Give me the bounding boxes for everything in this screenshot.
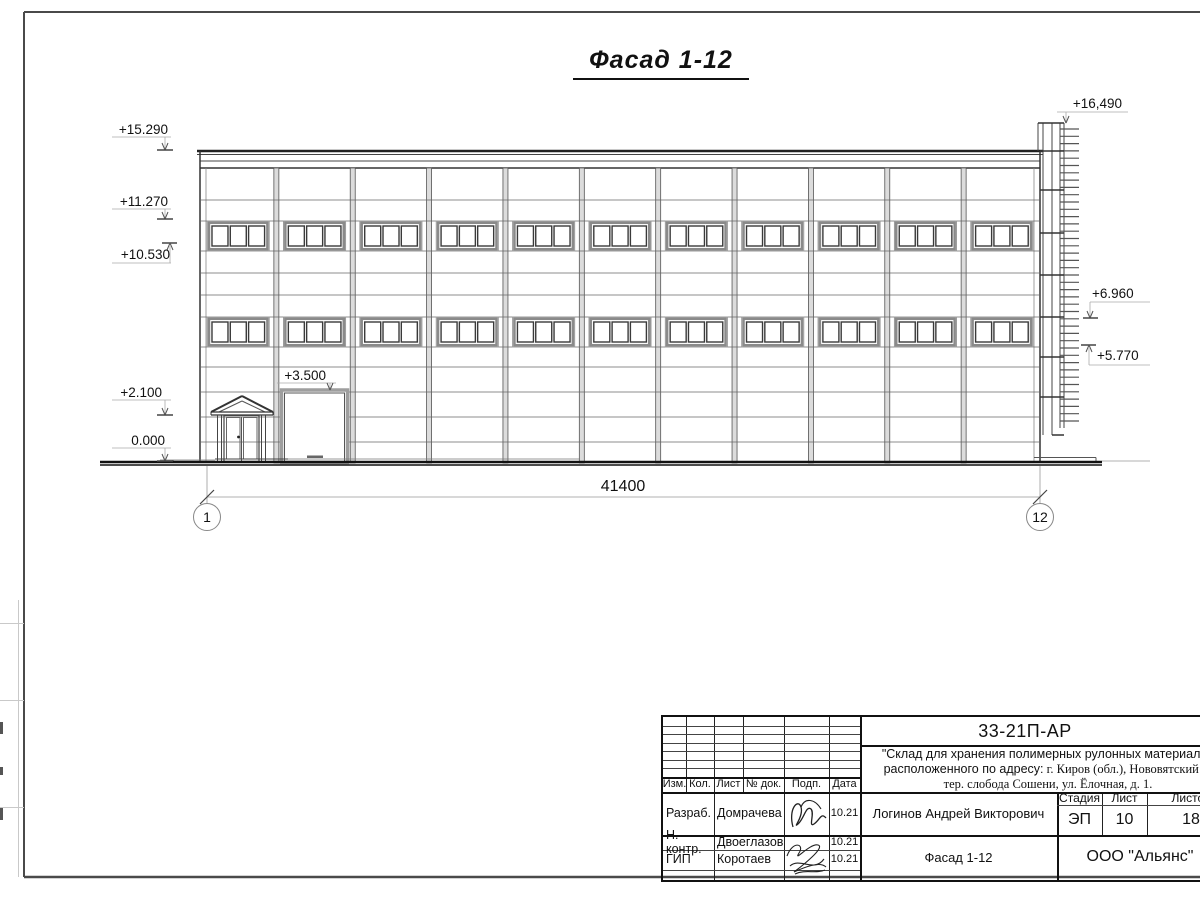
tb-company: ООО "Альянс" bbox=[1057, 835, 1200, 880]
project-line-3: тер. слобода Сошени, ул. Ёлочная, д. 1. bbox=[862, 777, 1200, 792]
elevation-label: +6.960 bbox=[1092, 286, 1134, 301]
tb-role: ГИП bbox=[663, 850, 717, 870]
tb-stage-header: Стадия bbox=[1057, 792, 1102, 805]
project-line-1: "Склад для хранения полимерных рулонных … bbox=[862, 747, 1200, 762]
dimension-text: 41400 bbox=[601, 478, 646, 495]
axis-bubble-label: 1 bbox=[203, 509, 211, 525]
project-line-2: расположенного по адресу: г. Киров (обл.… bbox=[862, 762, 1200, 777]
tb-list-header: Лист bbox=[1102, 792, 1147, 805]
elevation-label: 0.000 bbox=[131, 433, 165, 448]
elevation-label: +10.530 bbox=[121, 247, 170, 262]
tb-project-desc: "Склад для хранения полимерных рулонных … bbox=[862, 747, 1200, 792]
margin-mark bbox=[0, 722, 3, 734]
margin-line bbox=[18, 600, 19, 877]
elevation-label: +11.270 bbox=[120, 194, 168, 209]
tb-date: 10.21 bbox=[829, 792, 860, 835]
tb-date: 10.21 bbox=[829, 835, 860, 850]
signature bbox=[783, 836, 829, 878]
tb-list-value: 10 bbox=[1102, 805, 1147, 835]
title-block: Изм. Кол. Лист № док. Подп. Дата Разраб.… bbox=[661, 715, 1200, 882]
tb-header-data: Дата bbox=[829, 777, 860, 792]
axis-bubble-label: 12 bbox=[1032, 509, 1048, 525]
elevation-label: +16,490 bbox=[1073, 96, 1122, 111]
tb-header-izm: Изм. bbox=[663, 777, 686, 792]
margin-mark bbox=[0, 808, 3, 820]
tb-doc-number: 33-21П-АР bbox=[860, 717, 1190, 745]
margin-line bbox=[0, 700, 24, 701]
tb-date: 10.21 bbox=[829, 850, 860, 870]
tb-header-list: Лист bbox=[714, 777, 743, 792]
tb-listov-value: 18 bbox=[1147, 805, 1200, 835]
margin-line bbox=[0, 623, 24, 624]
elevation-label: +5.770 bbox=[1097, 348, 1139, 363]
tb-header-kol: Кол. bbox=[686, 777, 714, 792]
tb-header-podp: Подп. bbox=[784, 777, 829, 792]
elevation-label: +15.290 bbox=[119, 122, 168, 137]
tb-header-doc: № док. bbox=[743, 777, 784, 792]
tb-role-name: Двоеглазов bbox=[714, 835, 787, 850]
tb-drawing-title: Фасад 1-12 bbox=[860, 835, 1057, 880]
elevation-label: +2.100 bbox=[120, 385, 162, 400]
tb-stage-value: ЭП bbox=[1057, 805, 1102, 835]
margin-line bbox=[0, 807, 24, 808]
elevation-label: +3.500 bbox=[284, 368, 326, 383]
signature bbox=[785, 795, 829, 835]
tb-role-name: Домрачева bbox=[714, 792, 787, 835]
tb-role-name: Коротаев bbox=[714, 850, 787, 870]
tb-chief-name: Логинов Андрей Викторович bbox=[860, 792, 1057, 835]
tb-listov-header: Листов bbox=[1147, 792, 1200, 805]
drawing-sheet: Фасад 1-12 +15.290 +11.270 +10.530 +2.10… bbox=[0, 0, 1200, 900]
tb-role: Н. контр. bbox=[663, 835, 717, 850]
margin-mark bbox=[0, 767, 3, 775]
